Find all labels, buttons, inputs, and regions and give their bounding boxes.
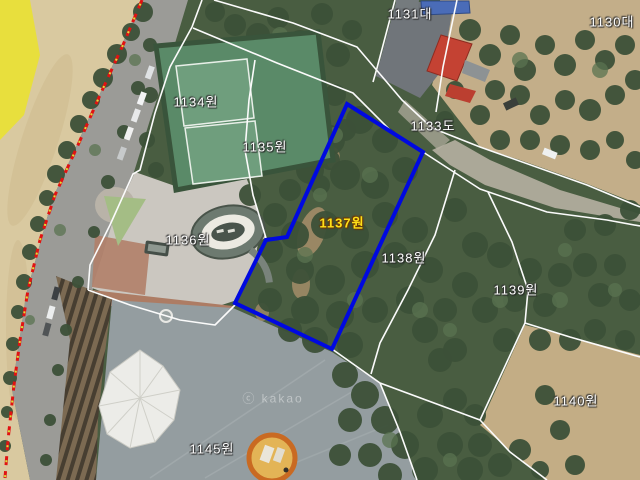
parcel-label[interactable]: 1133도 xyxy=(411,116,456,135)
parcel-label[interactable]: 1145원 xyxy=(190,439,235,458)
parcel-label[interactable]: 1139원 xyxy=(494,280,539,299)
parcel-label[interactable]: 1131대 xyxy=(388,4,433,23)
tennis-court xyxy=(156,32,333,190)
orange-circle-fixture xyxy=(249,435,295,480)
parcel-label[interactable]: 1140원 xyxy=(554,391,599,410)
satellite-imagery[interactable] xyxy=(0,0,640,480)
parcel-label[interactable]: 1136원 xyxy=(166,230,211,249)
satellite-map-view[interactable]: 1131대1130대1133도1134원1135원1136원1137원1138원… xyxy=(0,0,640,480)
parcel-label[interactable]: 1138원 xyxy=(382,248,427,267)
parcel-label[interactable]: 1130대 xyxy=(590,12,635,31)
parcel-label[interactable]: 1135원 xyxy=(243,137,288,156)
selected-parcel-label[interactable]: 1137원 xyxy=(319,213,364,232)
parcel-label[interactable]: 1134원 xyxy=(174,92,219,111)
